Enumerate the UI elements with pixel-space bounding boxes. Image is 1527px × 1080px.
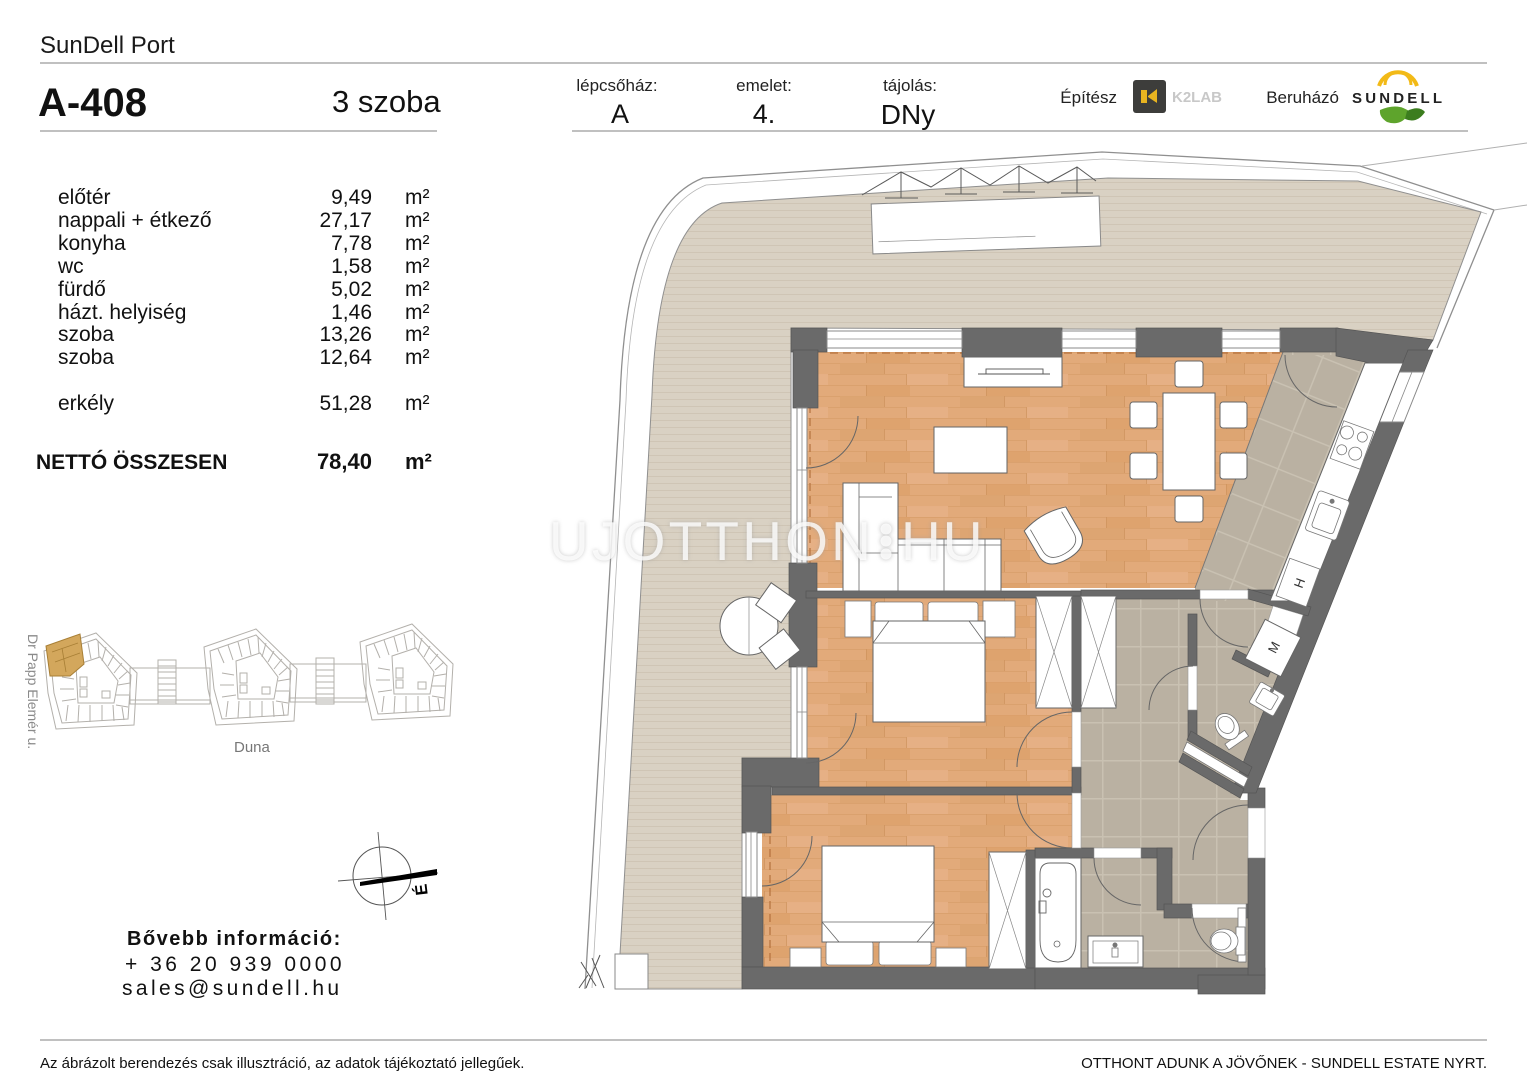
svg-text:HU: HU [901,510,984,572]
svg-text:1,46: 1,46 [331,301,372,324]
svg-text:Duna: Duna [234,739,271,756]
svg-text:m²: m² [405,346,430,369]
svg-text:m²: m² [405,186,430,209]
svg-text:erkély: erkély [58,392,115,415]
svg-text:SunDell Port: SunDell Port [40,32,175,59]
svg-text:m²: m² [405,301,430,324]
svg-text:sales@sundell.hu: sales@sundell.hu [122,977,342,1000]
svg-text:A-408: A-408 [38,81,147,125]
svg-text:+ 36 20 939 0000: + 36 20 939 0000 [125,953,345,976]
svg-text:OTTHONT ADUNK A JÖVŐNEK - SUND: OTTHONT ADUNK A JÖVŐNEK - SUNDELL ESTATE… [1081,1054,1487,1072]
svg-text:m²: m² [405,278,430,301]
svg-text:5,02: 5,02 [331,278,372,301]
svg-text:m²: m² [405,209,430,232]
svg-text:78,40: 78,40 [317,449,372,474]
svg-text:É: É [411,883,431,897]
svg-text:konyha: konyha [58,232,126,255]
svg-text:szoba: szoba [58,323,114,346]
svg-text:K2LAB: K2LAB [1172,89,1222,106]
svg-text:3 szoba: 3 szoba [332,84,441,119]
svg-text:szoba: szoba [58,346,114,369]
svg-text:Beruházó: Beruházó [1266,88,1339,107]
svg-text:házt. helyiség: házt. helyiség [58,301,186,324]
svg-text:DNy: DNy [881,99,935,130]
svg-text:m²: m² [405,323,430,346]
svg-text:wc: wc [57,255,84,278]
svg-text:m²: m² [405,392,430,415]
svg-text:4.: 4. [753,99,776,129]
svg-text:SUNDELL: SUNDELL [1352,90,1445,107]
svg-text:Bővebb információ:: Bővebb információ: [127,928,342,950]
svg-text:m²: m² [405,232,430,255]
svg-text:7,78: 7,78 [331,232,372,255]
svg-text:tájolás:: tájolás: [883,76,937,95]
svg-text:lépcsőház:: lépcsőház: [576,76,657,95]
svg-text:Dr Papp Elemér u.: Dr Papp Elemér u. [25,634,41,749]
svg-text:A: A [611,99,629,129]
svg-text:Építész: Építész [1060,88,1117,107]
svg-text:m²: m² [405,255,430,278]
svg-text:UJOTTHON: UJOTTHON [549,510,874,572]
svg-text:emelet:: emelet: [736,76,792,95]
svg-text:m²: m² [405,449,432,474]
svg-text:fürdő: fürdő [58,278,106,301]
svg-text:NETTÓ ÖSSZESEN: NETTÓ ÖSSZESEN [36,450,227,474]
svg-text:nappali + étkező: nappali + étkező [58,209,212,232]
svg-text:51,28: 51,28 [319,392,372,415]
svg-text:12,64: 12,64 [319,346,372,369]
svg-text:Az ábrázolt berendezés csak il: Az ábrázolt berendezés csak illusztráció… [40,1055,524,1072]
svg-text:előtér: előtér [58,186,111,209]
svg-text:13,26: 13,26 [319,323,372,346]
svg-text:27,17: 27,17 [319,209,372,232]
svg-text:9,49: 9,49 [331,186,372,209]
svg-text:1,58: 1,58 [331,255,372,278]
